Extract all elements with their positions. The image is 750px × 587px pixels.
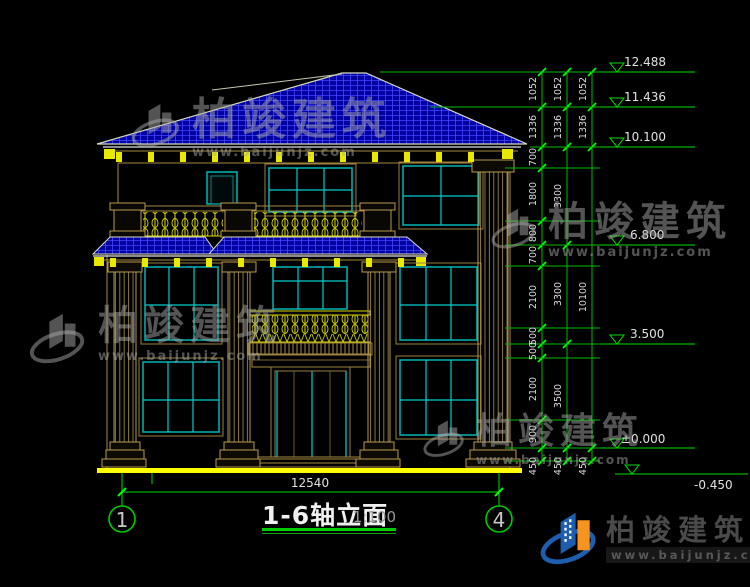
dim-label: 1336 [528, 115, 539, 139]
axis-bubble-4: 4 [493, 508, 506, 532]
dim-label: 700 [528, 148, 539, 166]
dim-label: 3300 [553, 184, 564, 208]
eave-corbel [502, 149, 513, 159]
axis-bubble-1: 1 [116, 508, 129, 532]
level-value: 11.436 [624, 90, 666, 104]
cad-drawing-page: { "drawing": { "title": "1-6轴立面", "scale… [0, 0, 750, 583]
entrance-door [242, 354, 378, 467]
window-2f-center [273, 267, 347, 309]
dim-label: 3300 [553, 282, 564, 306]
level-value: 12.488 [624, 55, 666, 69]
dim-label: 500 [528, 342, 539, 360]
window-1f-left [139, 358, 223, 436]
company-logo-icon [540, 506, 600, 572]
company-name: 柏竣建筑 [606, 515, 750, 545]
window-3f-center [265, 164, 356, 216]
dim-label: 800 [528, 224, 539, 242]
company-url: www.baijunjz.com [606, 547, 750, 563]
elevation-canvas: 12540 1 4 1-6轴立面 1:100 12.488 11.436 10.… [0, 0, 750, 583]
level-value: 3.500 [630, 327, 664, 341]
dim-label: 10100 [578, 282, 589, 312]
balcony [248, 311, 372, 355]
window-2f-left [141, 263, 222, 344]
dim-label: 1052 [578, 77, 589, 101]
dim-label: 700 [528, 246, 539, 264]
dim-label: 450 [528, 457, 539, 475]
level-labels: 12.488 11.436 10.100 6.800 3.500 ±0.000 … [621, 55, 733, 492]
level-value: 10.100 [624, 130, 666, 144]
dim-label: 1052 [553, 77, 564, 101]
drawing-scale: 1:100 [353, 508, 396, 526]
title-block: 1-6轴立面 1:100 [262, 501, 396, 534]
dim-label: 1800 [528, 182, 539, 206]
dim-label: 1052 [528, 77, 539, 101]
level-value: -0.450 [694, 478, 733, 492]
window-2f-right [396, 263, 481, 344]
dimension-chain-labels: 1052 1336 700 1800 800 700 2100 500 500 … [528, 77, 589, 475]
eave-corbel [104, 149, 115, 159]
level-value: ±0.000 [621, 432, 665, 446]
window-3f-right [399, 162, 483, 229]
dim-label: 1336 [578, 115, 589, 139]
window-1f-right [396, 356, 481, 439]
dim-label: 2100 [528, 377, 539, 401]
dim-label: 2100 [528, 285, 539, 309]
main-roof [97, 73, 527, 159]
dim-label: 1336 [553, 115, 564, 139]
dim-label: 3500 [553, 384, 564, 408]
terrace-door [207, 172, 237, 204]
ground-line [97, 468, 522, 473]
dim-label: 450 [578, 457, 589, 475]
dim-label: 450 [553, 457, 564, 475]
level-value: 6.800 [630, 228, 664, 242]
dim-label: 900 [528, 425, 539, 443]
company-logo: 柏竣建筑 www.baijunjz.com [540, 506, 750, 572]
total-width-label: 12540 [291, 476, 329, 490]
